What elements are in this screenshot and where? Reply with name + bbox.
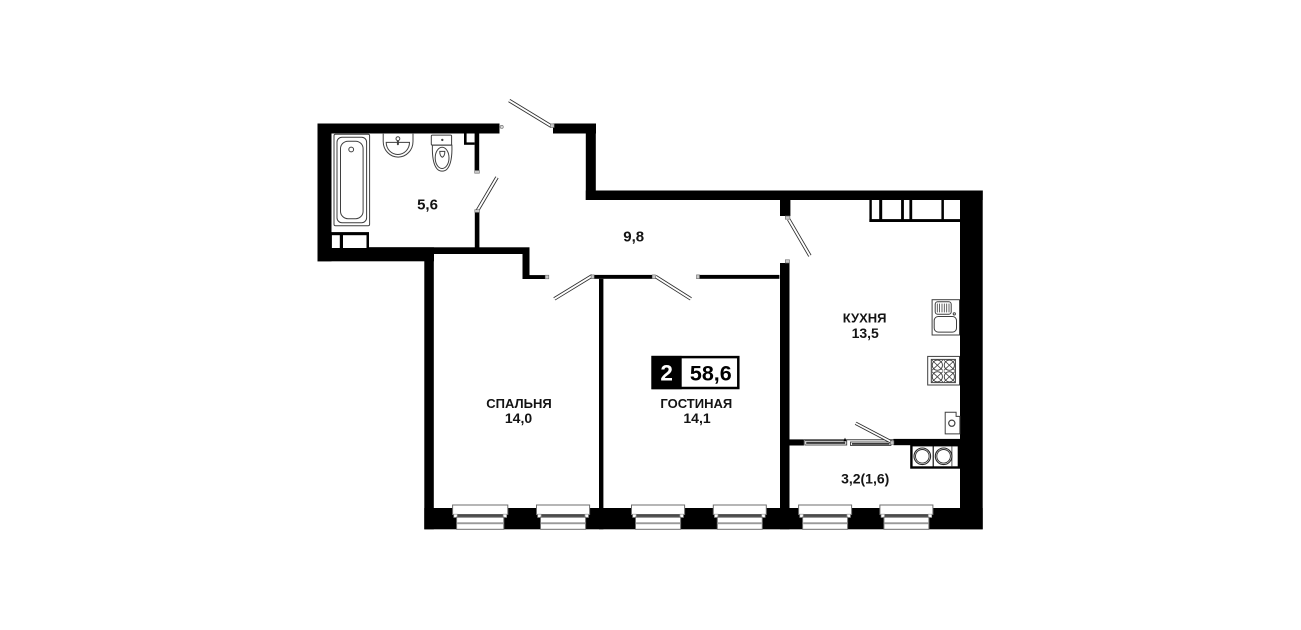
svg-text:58,6: 58,6: [690, 361, 732, 385]
svg-text:2: 2: [660, 360, 673, 385]
svg-text:9,8: 9,8: [623, 229, 644, 246]
svg-text:13,5: 13,5: [852, 325, 879, 341]
svg-text:14,1: 14,1: [683, 410, 710, 426]
svg-text:5,6: 5,6: [417, 196, 438, 213]
svg-text:14,0: 14,0: [505, 410, 532, 426]
svg-text:СПАЛЬНЯ: СПАЛЬНЯ: [486, 396, 551, 411]
svg-text:ГОСТИНАЯ: ГОСТИНАЯ: [660, 396, 732, 411]
svg-text:3,2(1,6): 3,2(1,6): [841, 470, 889, 486]
svg-text:КУХНЯ: КУХНЯ: [843, 311, 887, 326]
